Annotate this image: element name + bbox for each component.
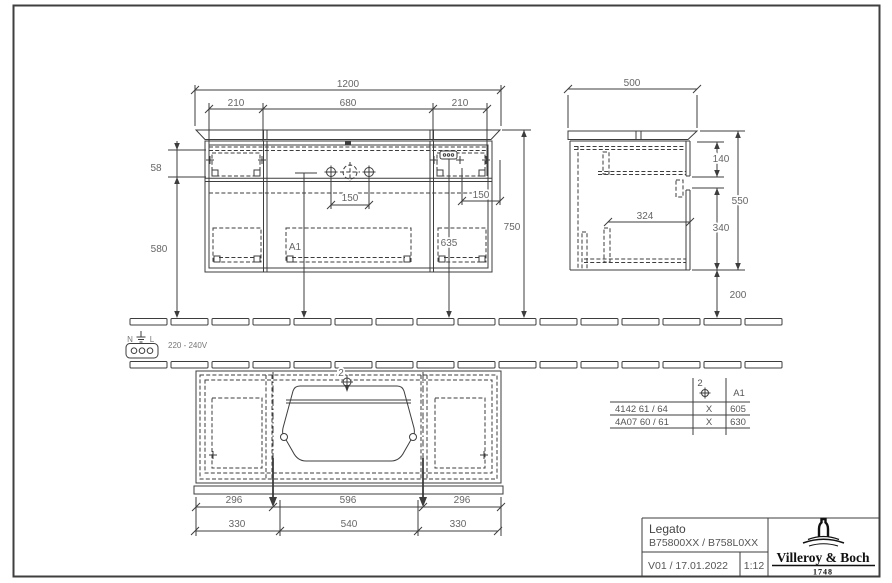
- dim-tap-span-center: 150: [342, 193, 359, 204]
- table-row2-code: 4A07 60 / 61: [615, 417, 669, 428]
- dim-overall-height: 750: [504, 222, 521, 233]
- dim-mount-right: 330: [450, 519, 467, 530]
- dim-lower-height: 580: [151, 244, 168, 255]
- handle-mark: [345, 141, 351, 145]
- dim-basin-right: 296: [454, 495, 471, 506]
- wall-socket-icon: [126, 344, 158, 359]
- plan-countertop-edge: [194, 486, 503, 494]
- dim-middle-section: 680: [340, 98, 357, 109]
- table-row1-tap: X: [706, 404, 713, 415]
- dim-right-door: 210: [452, 98, 469, 109]
- dim-mount-left: 330: [229, 519, 246, 530]
- dim-socket-height: 635: [441, 238, 458, 249]
- product-codes: B75800XX / B758L0XX: [649, 537, 758, 549]
- dim-inner-depth: 324: [637, 211, 654, 222]
- dim-hinge-offset: 58: [150, 163, 162, 174]
- brand-name: Villeroy & Boch: [777, 550, 870, 565]
- dim-top-drawer: 140: [713, 154, 730, 165]
- brand-year: 1748: [813, 568, 833, 577]
- table-header-tap: 2: [697, 378, 702, 389]
- countertop-front: [196, 130, 500, 140]
- drawing-scale: 1:12: [744, 560, 765, 572]
- dim-clearance: 200: [730, 290, 747, 301]
- dim-left-door: 210: [228, 98, 245, 109]
- technical-drawing: 1200 210 680 210 58 580 750 150 150 635 …: [0, 0, 892, 583]
- dim-body-height: 550: [732, 196, 749, 207]
- basin-fixing-right: [410, 434, 417, 441]
- voltage-label: 220 - 240V: [168, 341, 208, 350]
- revision-date: V01 / 17.01.2022: [648, 560, 728, 572]
- dim-depth: 500: [624, 78, 641, 89]
- table-row2-tap: X: [706, 417, 713, 428]
- drawing-sheet: 1200 210 680 210 58 580 750 150 150 635 …: [0, 0, 892, 583]
- table-row2-a1: 630: [730, 417, 746, 428]
- dim-basin-left: 296: [226, 495, 243, 506]
- table-row1-a1: 605: [730, 404, 746, 415]
- dim-total-width: 1200: [337, 79, 360, 90]
- drain-label: A1: [289, 242, 302, 253]
- line-label: L: [150, 335, 155, 344]
- product-name: Legato: [649, 522, 686, 536]
- countertop-side: [568, 131, 697, 140]
- table-row1-code: 4142 61 / 64: [615, 404, 668, 415]
- dim-basin-center: 596: [340, 495, 357, 506]
- table-header-a1: A1: [733, 388, 745, 399]
- neutral-label: N: [127, 335, 133, 344]
- power-socket-icon: [440, 151, 457, 159]
- dim-tap-span-right: 150: [473, 190, 490, 201]
- dim-bottom-drawer: 340: [713, 223, 730, 234]
- basin-fixing-left: [281, 434, 288, 441]
- plan-callout: 2: [338, 368, 344, 379]
- dim-mount-center: 540: [341, 519, 358, 530]
